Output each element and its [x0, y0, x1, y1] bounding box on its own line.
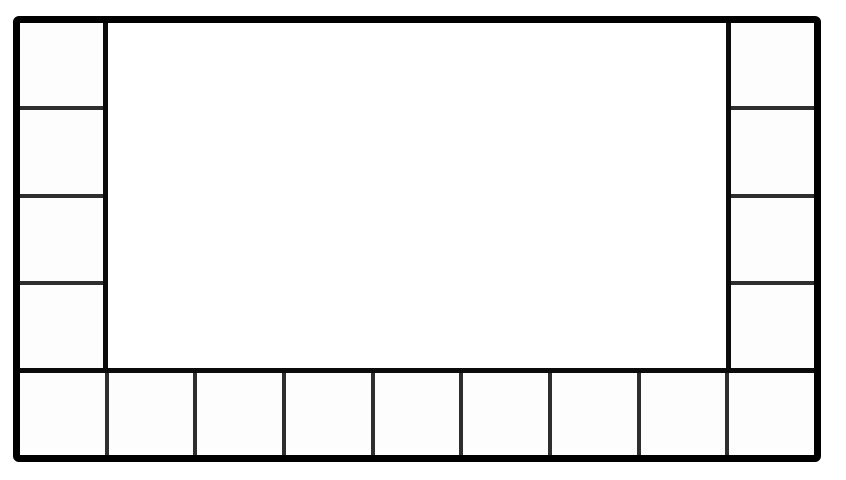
bottom-row-cell-4 [282, 373, 371, 455]
right-column-cell-2 [731, 106, 814, 193]
center-panel [108, 23, 726, 368]
bottom-row-cell-1 [20, 373, 105, 455]
bottom-row-cell-7 [548, 373, 637, 455]
right-column-cell-4 [731, 281, 814, 368]
bottom-row-cell-8 [637, 373, 726, 455]
right-column-cell-3 [731, 194, 814, 281]
bottom-row-cell-9 [725, 373, 814, 455]
bottom-row-cell-2 [105, 373, 194, 455]
left-column-cell-1 [20, 23, 103, 106]
left-cell-column [20, 23, 108, 368]
right-cell-column [726, 23, 814, 368]
right-column-cell-1 [731, 23, 814, 106]
left-column-cell-4 [20, 281, 103, 368]
bottom-cell-row [20, 368, 814, 455]
bottom-row-cell-6 [459, 373, 548, 455]
left-column-cell-2 [20, 106, 103, 193]
bottom-row-cell-3 [193, 373, 282, 455]
left-column-cell-3 [20, 194, 103, 281]
bottom-row-cell-5 [371, 373, 460, 455]
diagram-canvas [0, 0, 846, 480]
board-outline [13, 16, 821, 462]
